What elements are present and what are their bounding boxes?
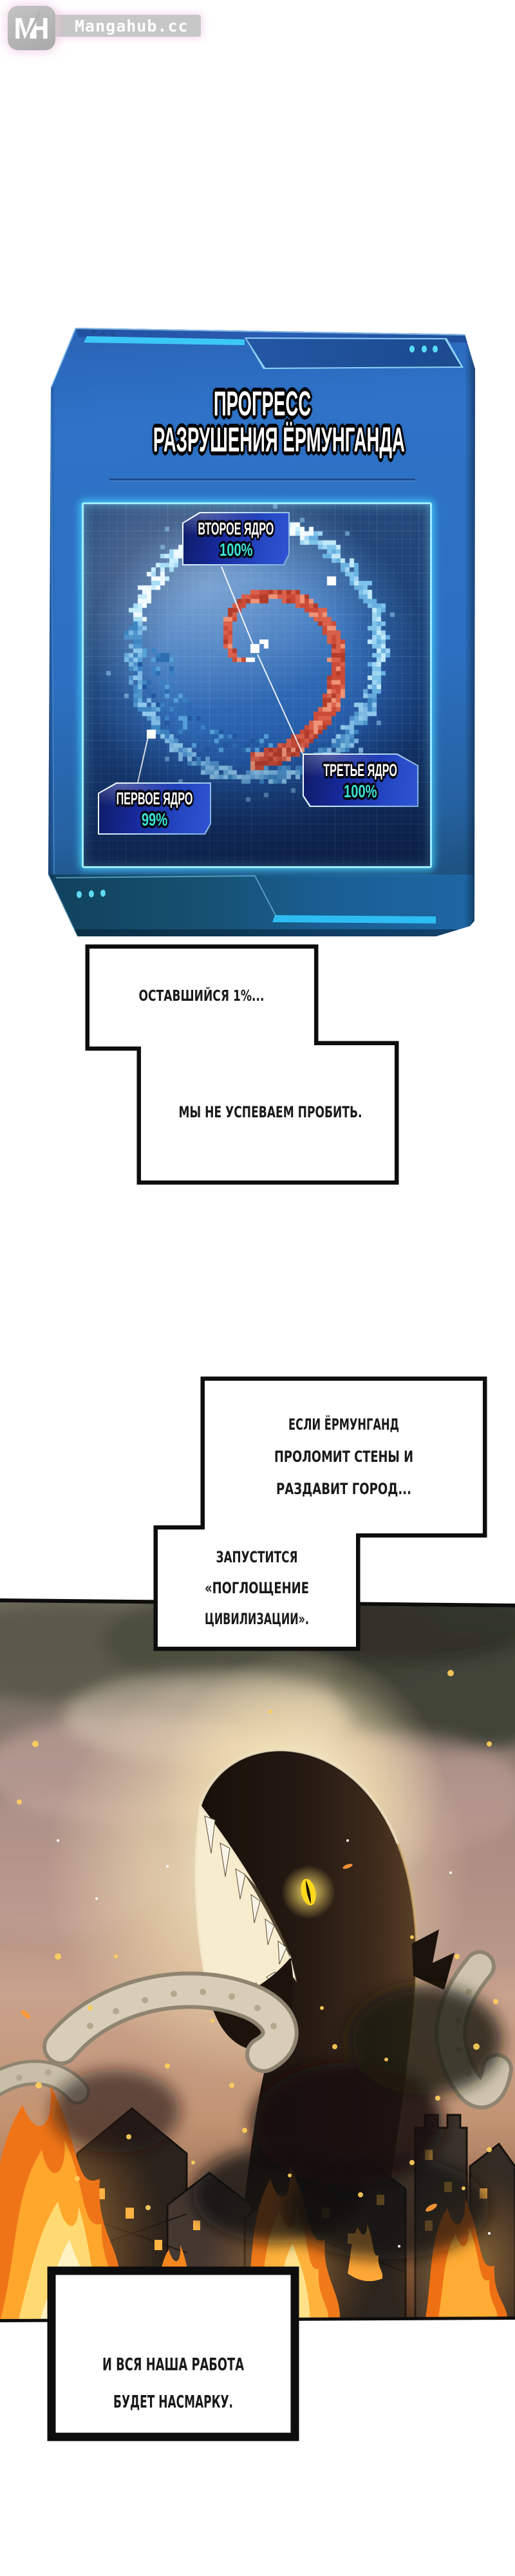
bubble-1-text: ОСТАВШИЙСЯ 1%...: [139, 987, 265, 1005]
svg-text:БУДЕТ НАСМАРКУ.: БУДЕТ НАСМАРКУ.: [113, 2392, 233, 2412]
svg-text:«ПОГЛОЩЕНИЕ: «ПОГЛОЩЕНИЕ: [205, 1579, 309, 1597]
speech-group-2: ЕСЛИ ЁРМУНГАНД ПРОЛОМИТ СТЕНЫ И РАЗДАВИТ…: [148, 1365, 509, 1662]
core-badge-second: ВТОРОЕ ЯДРО 100%: [182, 512, 290, 565]
panel-divider: [109, 478, 415, 480]
bubble-2-text: МЫ НЕ УСПЕВАЕМ ПРОБИТЬ.: [179, 1103, 362, 1121]
core-third-value: 100%: [344, 781, 377, 802]
core-third-label: ТРЕТЬЕ ЯДРО: [324, 761, 398, 781]
svg-text:ЕСЛИ ЁРМУНГАНД: ЕСЛИ ЁРМУНГАНД: [288, 1415, 399, 1434]
artwork-panel: [0, 1596, 515, 2325]
panel-title: ПРОГРЕСС РАЗРУШЕНИЯ ЁРМУНГАНДА: [48, 386, 476, 458]
bubble-3-text: ЕСЛИ ЁРМУНГАНД ПРОЛОМИТ СТЕНЫ И РАЗДАВИТ…: [274, 1415, 413, 1498]
core-second-value: 100%: [220, 540, 253, 560]
svg-text:ПРОЛОМИТ СТЕНЫ И: ПРОЛОМИТ СТЕНЫ И: [274, 1448, 413, 1466]
panel-title-line1: ПРОГРЕСС: [153, 386, 371, 422]
svg-text:РАЗДАВИТ ГОРОД...: РАЗДАВИТ ГОРОД...: [276, 1480, 411, 1498]
svg-text:ЗАПУСТИТСЯ: ЗАПУСТИТСЯ: [216, 1548, 298, 1566]
core-second-label: ВТОРОЕ ЯДРО: [198, 519, 274, 539]
panel-title-line2: РАЗРУШЕНИЯ ЁРМУНГАНДА: [153, 422, 371, 458]
site-logo-text: Mangahub.cc: [75, 17, 189, 35]
site-logo-bar[interactable]: Mangahub.cc: [51, 15, 201, 37]
speech-group-1: ОСТАВШИЙСЯ 1%... МЫ НЕ УСПЕВАЕМ ПРОБИТЬ.: [51, 921, 425, 1204]
core-badge-third: ТРЕТЬЕ ЯДРО 100%: [303, 753, 418, 807]
page: Mangahub.cc M H: [0, 0, 515, 2576]
svg-text:И ВСЯ НАША РАБОТА: И ВСЯ НАША РАБОТА: [102, 2355, 244, 2375]
core-first-label: ПЕРВОЕ ЯДРО: [117, 789, 193, 809]
core-badge-first: ПЕРВОЕ ЯДРО 99%: [98, 782, 211, 835]
core-first-value: 99%: [142, 810, 167, 830]
svg-text:ЦИВИЛИЗАЦИИ».: ЦИВИЛИЗАЦИИ».: [205, 1610, 309, 1628]
bubble-4-text: ЗАПУСТИТСЯ «ПОГЛОЩЕНИЕ ЦИВИЛИЗАЦИИ».: [205, 1548, 309, 1628]
progress-panel: ПРОГРЕСС РАЗРУШЕНИЯ ЁРМУНГАНДА ВТОРОЕ ЯД…: [48, 325, 476, 937]
progress-screen: ВТОРОЕ ЯДРО 100% ПЕРВОЕ ЯДРО 99% ТРЕТЬЕ …: [82, 502, 432, 868]
site-logo-icon[interactable]: M H: [8, 6, 55, 50]
serpent-city-illustration: [0, 1596, 515, 2325]
speech-group-3: И ВСЯ НАША РАБОТА БУДЕТ НАСМАРКУ.: [39, 2254, 315, 2447]
